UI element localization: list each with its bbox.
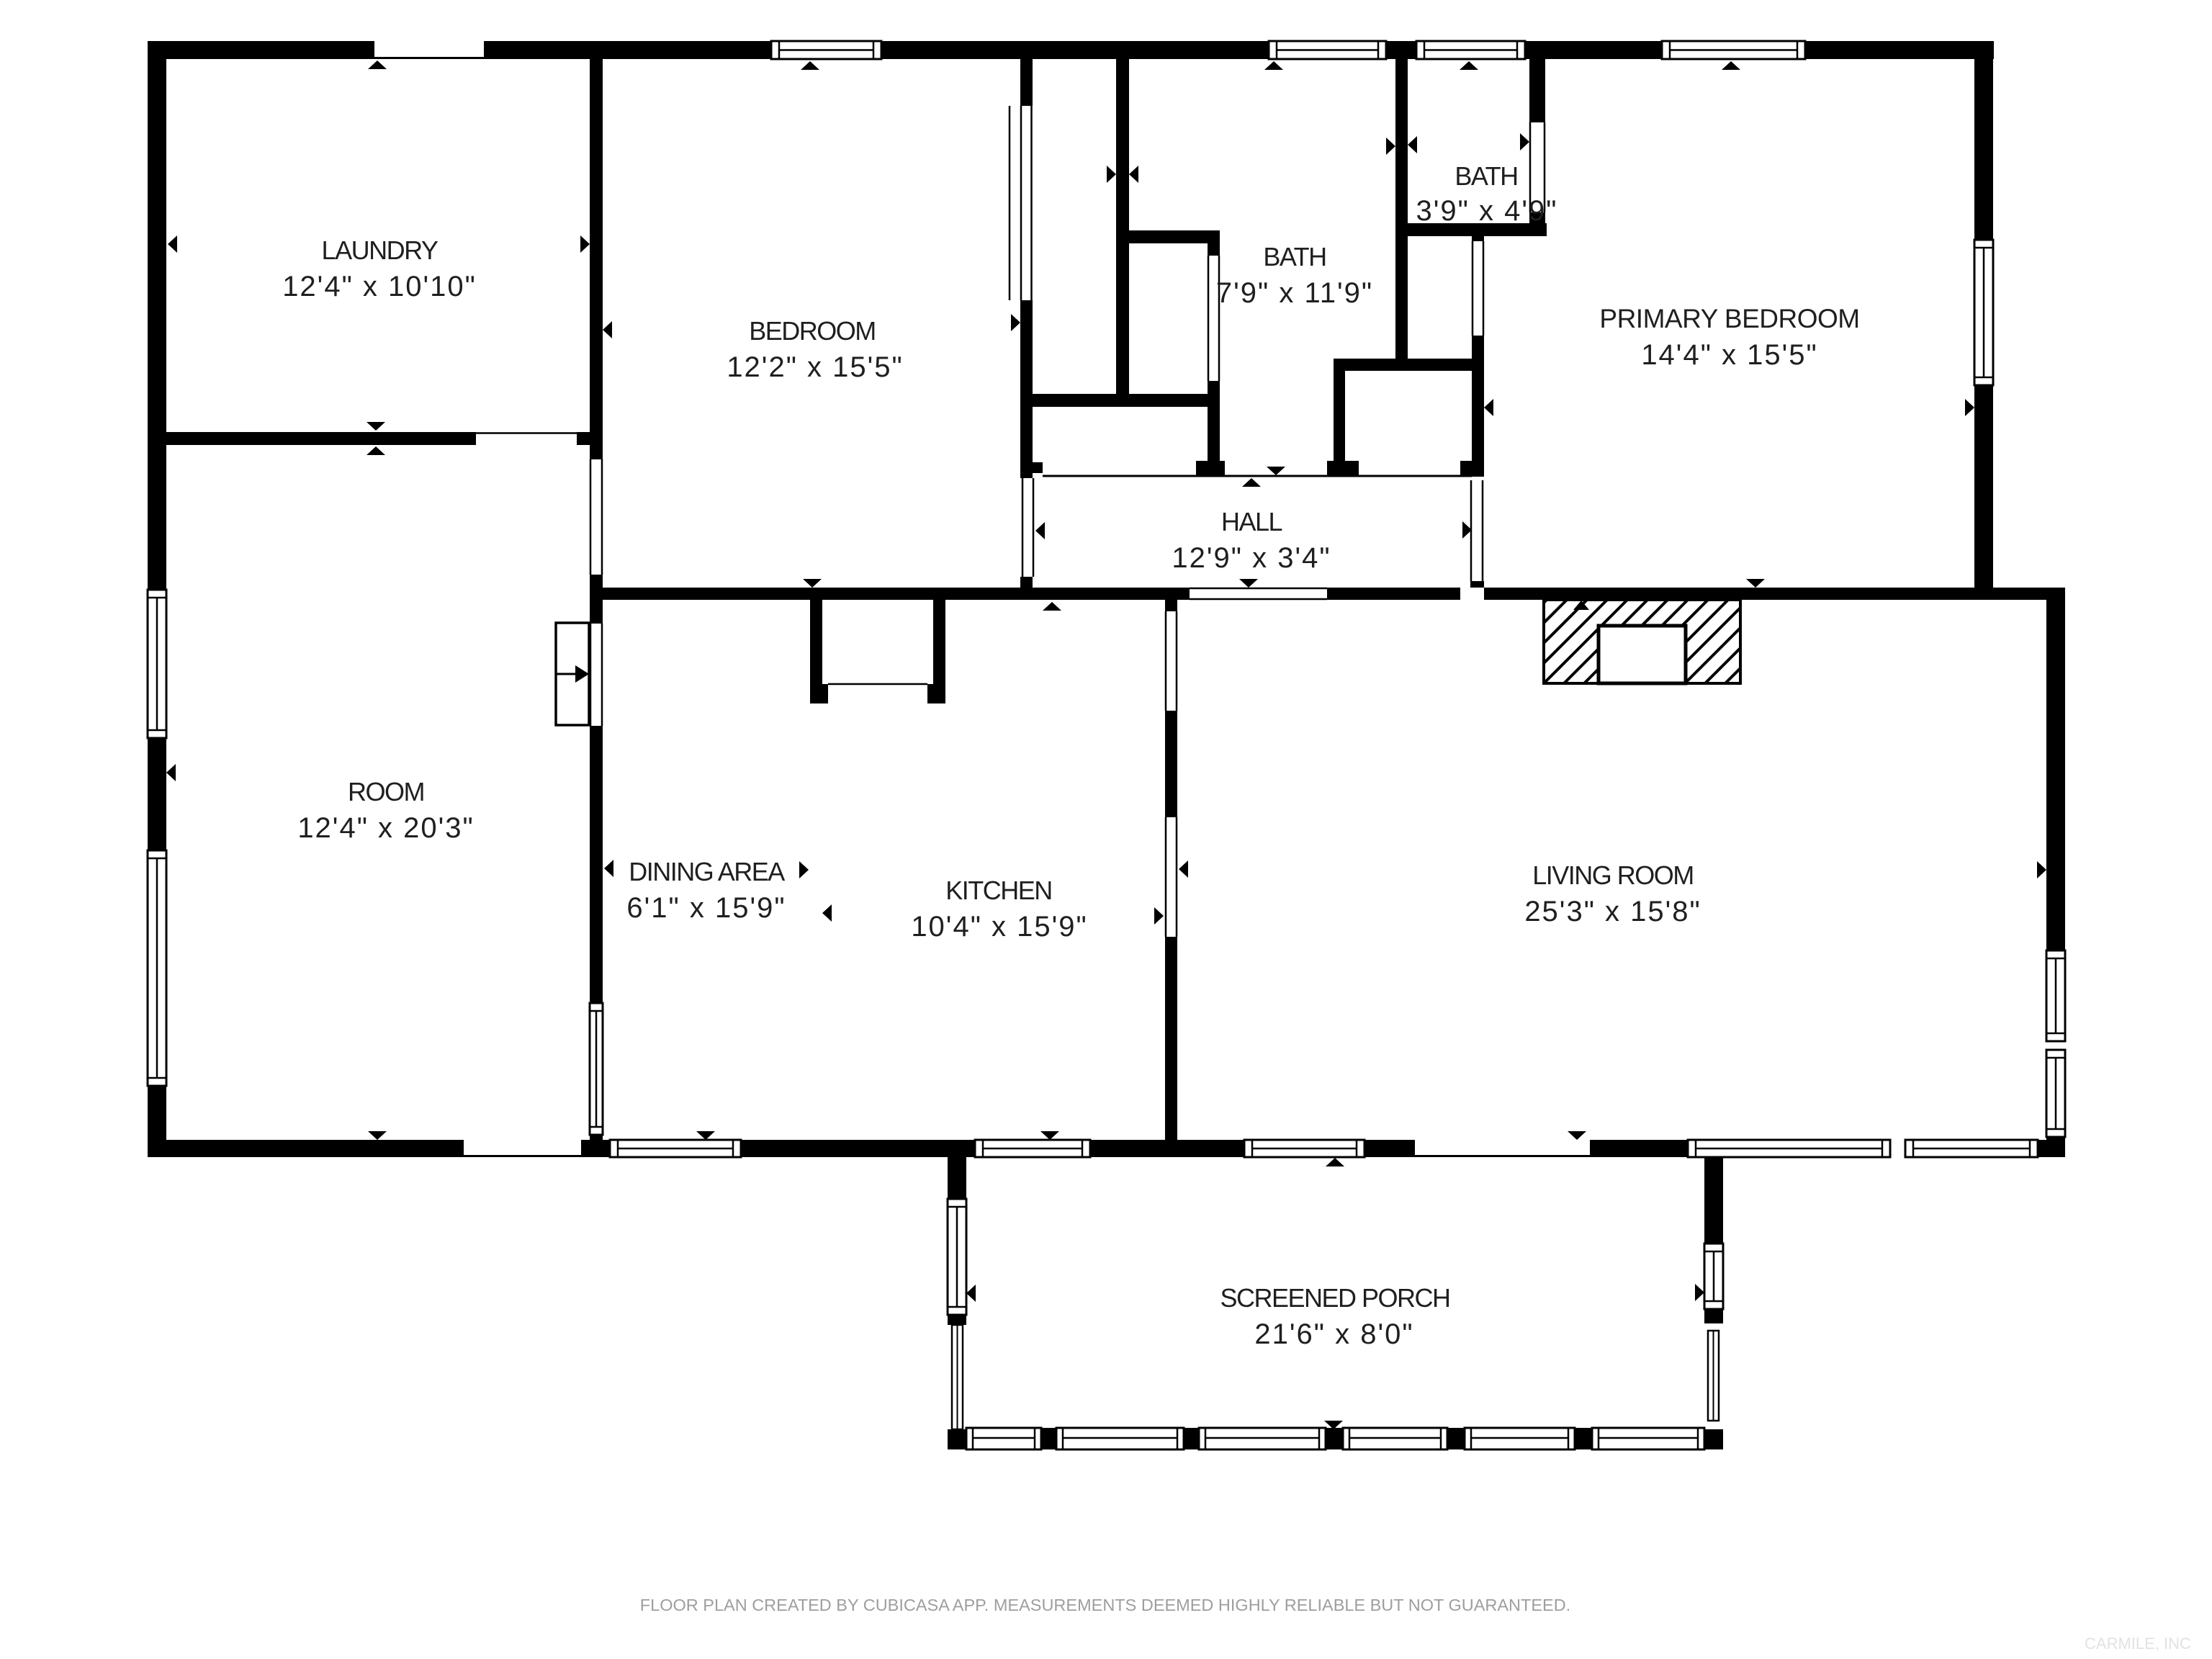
svg-text:PRIMARY BEDROOM: PRIMARY BEDROOM	[1599, 304, 1859, 333]
svg-text:12'2" x 15'5": 12'2" x 15'5"	[727, 351, 903, 383]
svg-text:BATH: BATH	[1263, 242, 1326, 271]
svg-text:10'4" x 15'9": 10'4" x 15'9"	[911, 911, 1087, 943]
svg-text:14'4" x 15'5": 14'4" x 15'5"	[1641, 339, 1817, 371]
svg-text:7'9" x 11'9": 7'9" x 11'9"	[1216, 277, 1373, 309]
svg-text:DINING AREA: DINING AREA	[629, 857, 785, 886]
svg-text:LAUNDRY: LAUNDRY	[322, 235, 439, 265]
svg-text:HALL: HALL	[1221, 507, 1282, 536]
svg-text:SCREENED PORCH: SCREENED PORCH	[1220, 1283, 1449, 1313]
svg-text:KITCHEN: KITCHEN	[945, 876, 1052, 905]
svg-text:21'6" x 8'0": 21'6" x 8'0"	[1254, 1318, 1413, 1350]
svg-text:25'3" x 15'8": 25'3" x 15'8"	[1524, 896, 1701, 927]
svg-text:12'9" x 3'4": 12'9" x 3'4"	[1172, 542, 1331, 574]
svg-text:3'9" x 4'9": 3'9" x 4'9"	[1416, 195, 1558, 227]
svg-text:12'4" x 10'10": 12'4" x 10'10"	[282, 271, 477, 302]
svg-text:BATH: BATH	[1455, 161, 1517, 191]
svg-text:6'1" x 15'9": 6'1" x 15'9"	[626, 892, 786, 924]
svg-text:ROOM: ROOM	[348, 777, 424, 806]
svg-text:LIVING ROOM: LIVING ROOM	[1532, 860, 1694, 890]
svg-text:FLOOR PLAN CREATED BY CUBICASA: FLOOR PLAN CREATED BY CUBICASA APP. MEAS…	[640, 1596, 1570, 1614]
svg-text:BEDROOM: BEDROOM	[749, 316, 876, 346]
svg-text:CARMILE, INC: CARMILE, INC	[2085, 1635, 2191, 1653]
svg-text:12'4" x 20'3": 12'4" x 20'3"	[297, 812, 474, 844]
